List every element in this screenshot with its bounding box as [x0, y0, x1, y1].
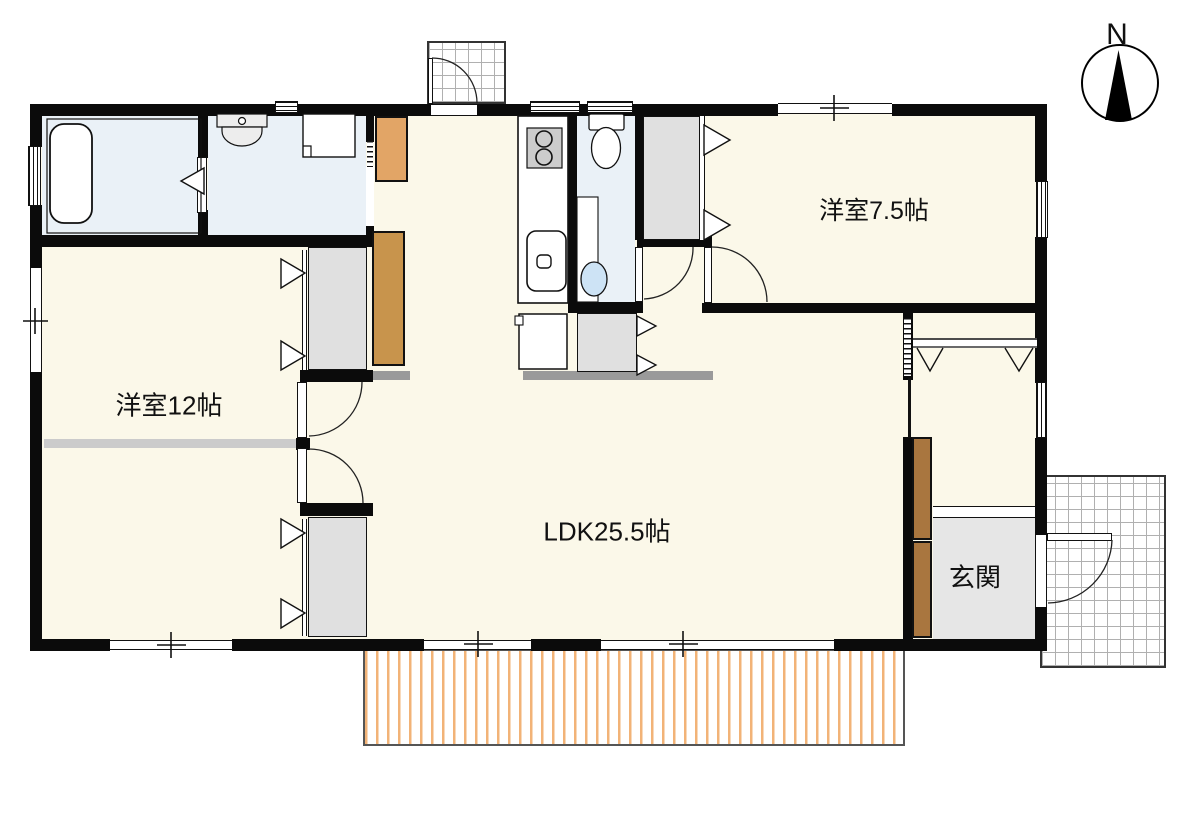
wall-toilet-bottom	[568, 302, 643, 313]
hall-wall-hatch	[904, 318, 911, 376]
ldk-terrace-window-1	[424, 640, 531, 650]
washroom-floor	[208, 116, 366, 237]
wall-closet2-top	[300, 503, 373, 516]
kitchen-window	[530, 101, 580, 113]
wall-right-4	[1035, 607, 1047, 651]
entry-door-gap	[1035, 535, 1047, 607]
counter-divider-left	[373, 371, 410, 380]
hall-side-window	[1036, 382, 1047, 438]
wall-bath-divider-bottom	[198, 210, 208, 237]
wall-kitchen-toilet	[568, 116, 577, 303]
wall-closet1-bottom	[300, 370, 373, 382]
shoe-cabinet-upper	[912, 437, 932, 540]
bathroom-floor	[42, 116, 198, 237]
counter-divider-kitchen	[523, 371, 713, 380]
wall-left-1	[30, 104, 42, 147]
label-ldk: LDK25.5帖	[543, 512, 670, 549]
western12-door-panel-1	[297, 382, 307, 438]
storage-ldk	[577, 313, 637, 372]
label-western12: 洋室12帖	[116, 386, 223, 423]
wall-washroom-right-top	[366, 116, 374, 142]
label-entrance: 玄関	[949, 558, 1001, 595]
back-door-leaf	[428, 58, 433, 104]
western75-door-panel	[704, 247, 712, 303]
sliding-partition-line	[908, 378, 911, 438]
cabinet-lower	[372, 231, 405, 366]
wall-left-3	[30, 372, 42, 651]
entry-door-leaf	[1047, 533, 1112, 541]
washroom-wall-hatch	[367, 141, 373, 167]
shoe-cabinet-lower	[912, 541, 932, 638]
floor-plan: 洋室12帖 洋室7.5帖 LDK25.5帖 玄関 N	[0, 0, 1200, 816]
closet-west12-lower	[308, 517, 367, 637]
closet-west75	[643, 116, 700, 240]
toilet-window	[587, 101, 633, 113]
wall-wet-bottom	[30, 235, 373, 247]
western75-side-window	[1036, 181, 1048, 238]
hall-door-panel	[635, 247, 643, 302]
ldk-terrace-window-2	[601, 640, 834, 650]
room-partition-line	[44, 439, 298, 448]
wall-bottom-4	[834, 639, 1047, 651]
western75-top-window	[778, 103, 892, 114]
wood-deck	[363, 649, 905, 746]
wall-toilet-right	[635, 116, 643, 240]
wall-top-1	[30, 104, 431, 116]
back-porch	[427, 41, 506, 104]
washroom-door-gap	[366, 166, 374, 226]
western12-bottom-window	[110, 640, 232, 650]
closet1-door-line	[302, 250, 307, 370]
wall-bottom-2	[232, 639, 424, 651]
wall-right-1	[1035, 104, 1047, 182]
cabinet-upper	[375, 116, 408, 182]
entrance-porch	[1040, 475, 1166, 668]
back-door-gap	[431, 104, 477, 116]
label-western75: 洋室7.5帖	[819, 191, 929, 227]
genkan-step	[933, 506, 1037, 518]
wall-bottom-3	[531, 639, 601, 651]
wall-top-3	[892, 104, 1047, 116]
closet-west12-upper	[308, 247, 367, 370]
closet2-door-line	[302, 519, 307, 636]
western12-left-window	[30, 268, 42, 372]
north-arrow-icon	[1105, 50, 1132, 120]
western12-door-panel-2	[297, 448, 307, 503]
wall-hall-top	[702, 303, 1047, 313]
washroom-window	[275, 101, 298, 113]
toilet-floor	[577, 116, 635, 303]
bathroom-window	[28, 146, 41, 206]
compass-circle	[1082, 45, 1158, 121]
wall-bath-divider-top	[198, 116, 208, 158]
label-north: N	[1106, 18, 1128, 52]
wall-right-3	[1035, 438, 1047, 535]
bathroom-door-panel	[197, 157, 207, 213]
wall-bottom-1	[30, 639, 110, 651]
